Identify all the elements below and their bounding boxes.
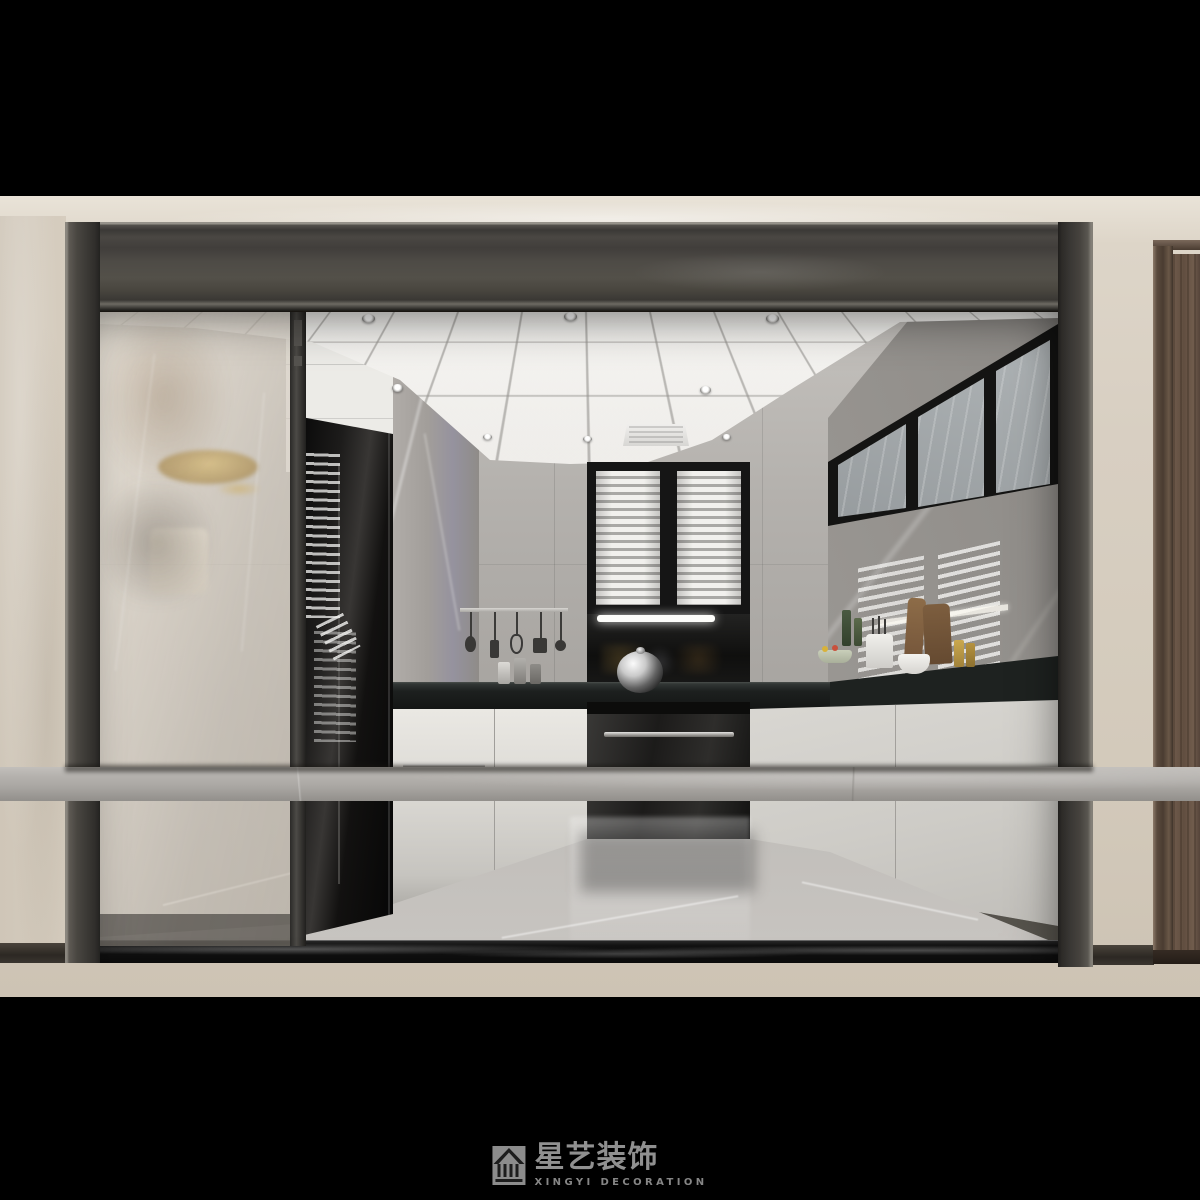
logo-columns-glyph: [497, 1164, 520, 1177]
kitchen-interior: [100, 312, 1058, 963]
downlight: [392, 384, 403, 392]
strip-light: [597, 615, 715, 622]
panel-hardware: [294, 356, 302, 366]
downlight: [722, 434, 731, 440]
panel-hardware: [294, 320, 302, 346]
downlight: [700, 386, 711, 394]
utensil-rail: [460, 608, 568, 612]
letterbox-top: [0, 0, 1200, 196]
logo-roof-glyph: [493, 1148, 524, 1164]
refrigerator: [296, 416, 393, 937]
hanging-turner: [533, 638, 547, 653]
baseboard-right: [1090, 945, 1154, 965]
silver-pot: [617, 651, 663, 693]
fruit: [822, 646, 828, 652]
hanging-utensil: [560, 612, 562, 642]
rendering-stage: 星艺装饰 XINGYI DECORATION: [0, 0, 1200, 1200]
logo-text: 星艺装饰 XINGYI DECORATION: [534, 1143, 707, 1188]
side-door: [1173, 254, 1200, 956]
dark-backsplash-panel: [587, 614, 750, 690]
downlight: [483, 434, 492, 440]
doorway-frame-top: [65, 222, 1093, 312]
oven-floor-reflection: [580, 832, 755, 892]
spice-jar: [514, 658, 526, 684]
window-blinds-left: [596, 471, 660, 605]
downlight: [583, 436, 592, 442]
glass-panel-stile: [290, 312, 306, 946]
white-canister: [866, 634, 893, 668]
hanging-whisk: [510, 634, 523, 654]
hanging-utensil: [490, 640, 499, 658]
kitchen-window: [587, 462, 750, 614]
blinds-reflection: [304, 450, 340, 618]
spice-jar: [498, 662, 510, 684]
fruit: [832, 645, 838, 651]
brand-logo: 星艺装饰 XINGYI DECORATION: [492, 1143, 707, 1188]
ceiling-vent: [623, 424, 689, 446]
baseboard-left: [0, 943, 66, 963]
glass-panel-bottom-rail: [100, 914, 290, 946]
side-door-sill: [1153, 950, 1200, 964]
spice-jar: [530, 664, 541, 684]
downlight: [564, 312, 577, 321]
hanging-utensil: [465, 636, 476, 652]
left-wall: [0, 216, 66, 946]
doorway-shadow: [65, 765, 1093, 772]
wood-furniture-reflection: [100, 312, 226, 482]
vegetable-colander: [818, 650, 852, 663]
canister-utensil: [878, 616, 880, 636]
chair-reflection: [100, 482, 212, 604]
hanging-utensil: [540, 612, 542, 640]
oil-bottle: [954, 640, 964, 667]
hanging-utensil: [494, 612, 496, 642]
window-blinds-right: [677, 471, 741, 605]
logo-chinese-name: 星艺装饰: [534, 1143, 707, 1173]
hanging-utensil: [516, 612, 518, 636]
side-door-frame: [1153, 246, 1173, 964]
green-bottle: [842, 610, 851, 646]
downlight: [766, 314, 779, 323]
doorway-frame-right: [1058, 222, 1093, 967]
oven-handle: [604, 732, 734, 737]
hanging-utensil: [470, 612, 472, 638]
downlight: [362, 314, 375, 323]
glass-sliding-panel: [100, 312, 306, 946]
hanging-ladle: [555, 640, 566, 651]
green-bottle: [854, 618, 862, 646]
xingyi-pavilion-icon: [492, 1146, 525, 1185]
foreground-floor: [0, 767, 1200, 801]
doorway-frame-left: [65, 222, 100, 963]
oil-bottle: [966, 643, 975, 667]
logo-english-name: XINGYI DECORATION: [534, 1178, 707, 1188]
light-streak: [241, 392, 266, 651]
logo-base-glyph: [495, 1179, 522, 1182]
